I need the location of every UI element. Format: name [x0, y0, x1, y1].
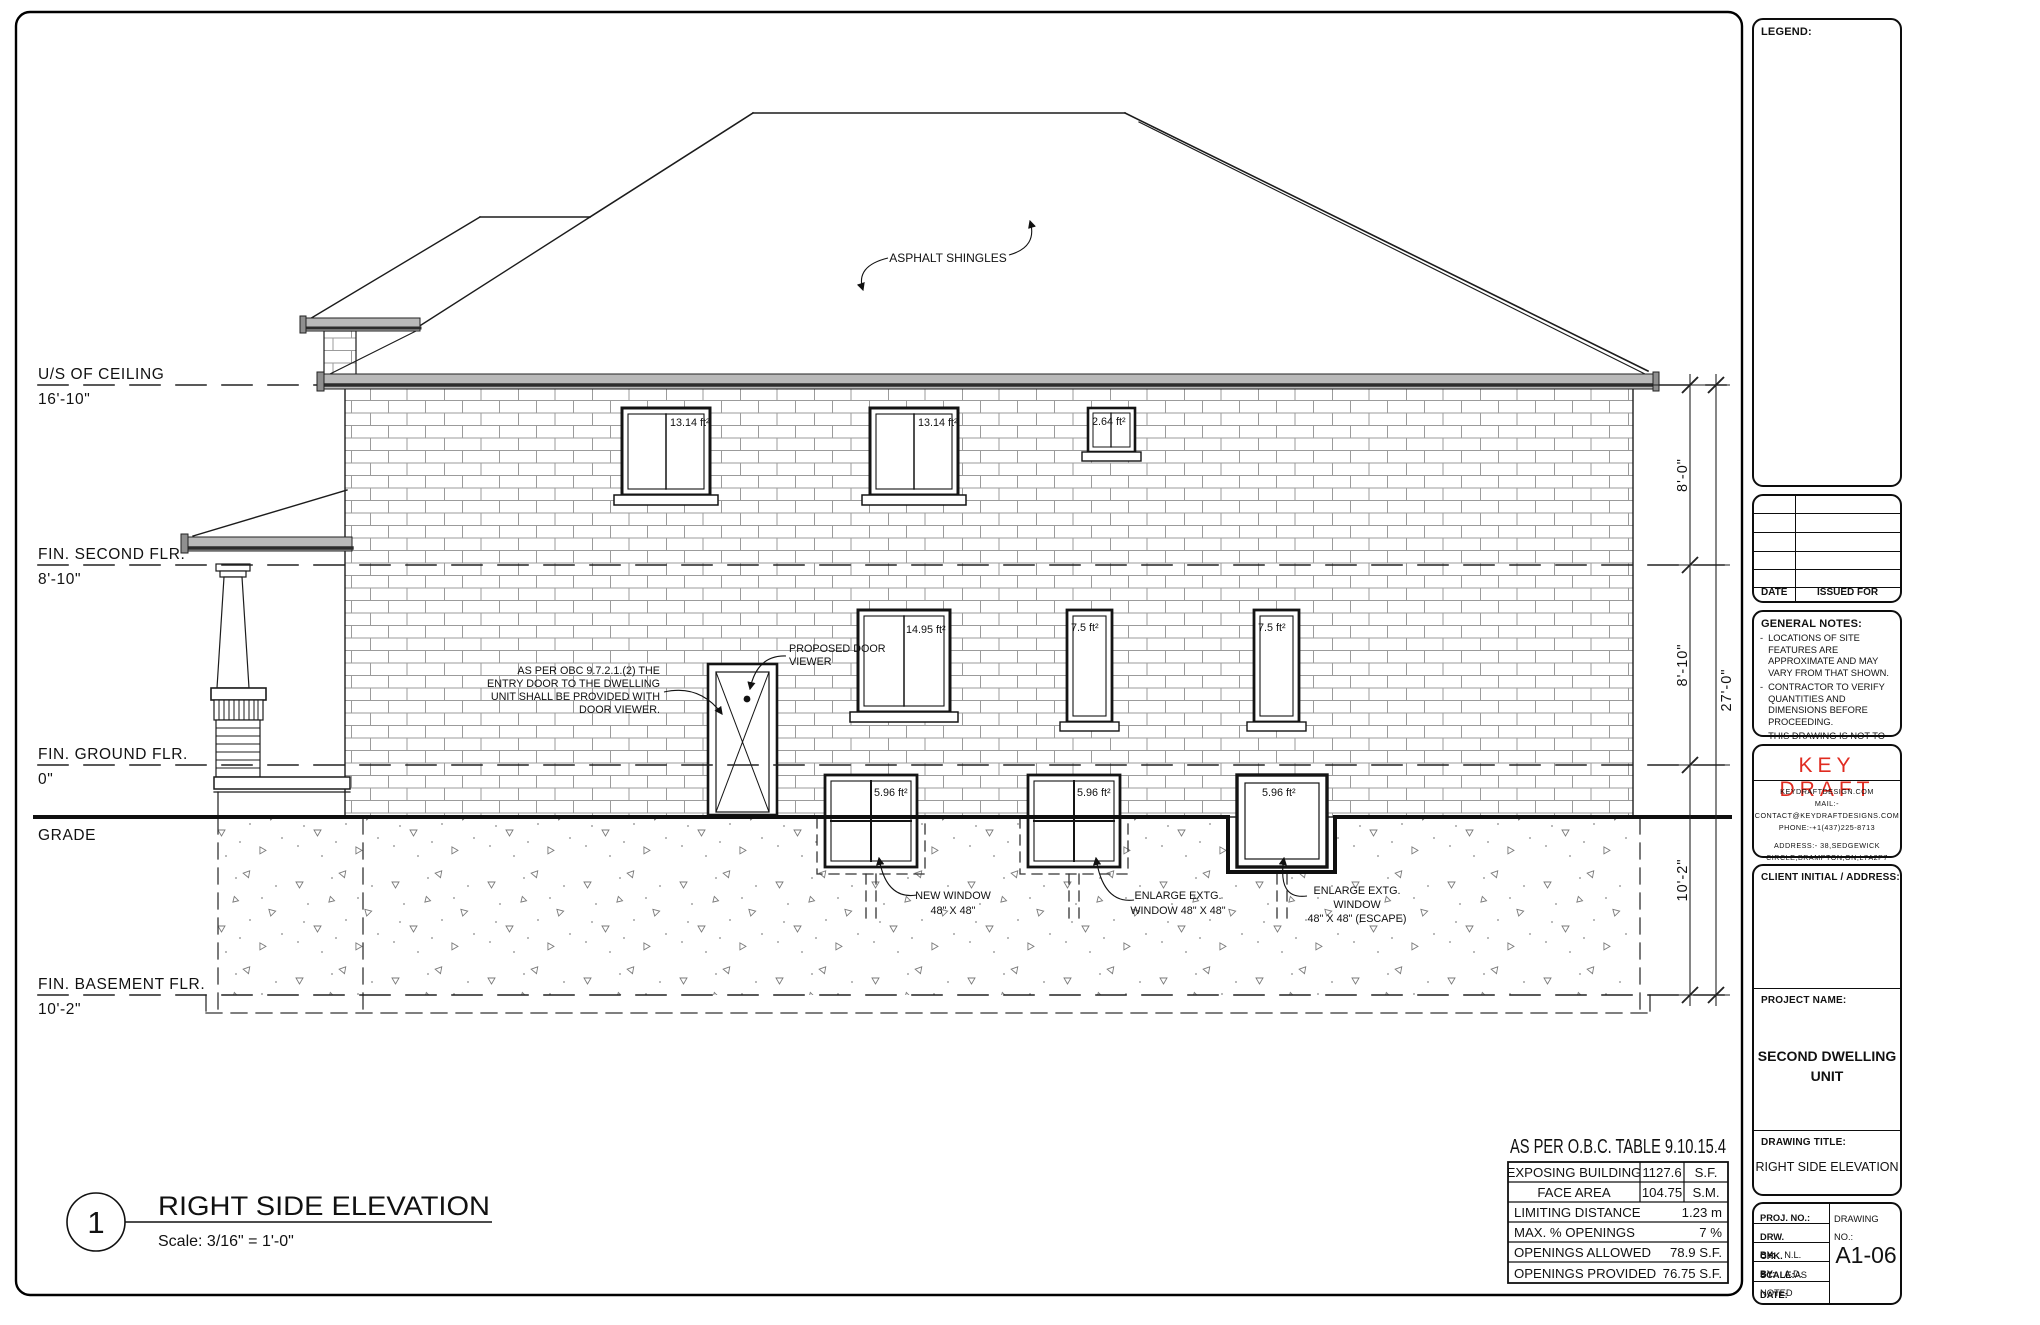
firm-logo: KEY DRAFT	[1754, 746, 1900, 778]
proj-no-label: PROJ. NO.:	[1760, 1213, 1810, 1223]
general-notes-box: GENERAL NOTES: LOCATIONS OF SITE FEATURE…	[1752, 610, 1902, 737]
area-second-b: 13.14 ft²	[918, 417, 958, 429]
area-ground-big: 14.95 ft²	[906, 624, 946, 636]
door-viewer-dot	[744, 696, 751, 703]
drawing-title-value: RIGHT SIDE ELEVATION	[1754, 1160, 1900, 1174]
main-fascia	[317, 372, 1659, 391]
obc-sf-unit: S.F.	[1695, 1165, 1718, 1180]
dimension-texts: 8'-0" 8'-10" 10'-2" 27'-0"	[1675, 458, 1735, 901]
area-basement-b: 5.96 ft²	[1077, 787, 1111, 799]
note-enlarge2-2: WINDOW	[1333, 899, 1381, 911]
note-viewer-2: VIEWER	[789, 656, 832, 668]
general-note-item: CONTRACTOR TO VERIFY QUANTITIES AND DIME…	[1758, 682, 1892, 728]
label-basement: FIN. BASEMENT FLR.	[38, 976, 205, 993]
level-labels: U/S OF CEILING 16'-10" FIN. SECOND FLR. …	[38, 366, 205, 1018]
general-note-item: LOCATIONS OF SITE FEATURES ARE APPROXIMA…	[1758, 633, 1892, 679]
firm-address-1: ADDRESS:- 38,SEDGEWICK	[1754, 840, 1900, 852]
value-ground: 0"	[38, 771, 53, 788]
obc-provided-value: 76.75 S.F.	[1663, 1266, 1722, 1281]
view-number: 1	[87, 1205, 104, 1240]
note-enlarge1-1: ENLARGE EXTG.	[1135, 890, 1222, 902]
value-ceiling: 16'-10"	[38, 391, 90, 408]
project-name-line1: SECOND DWELLING	[1754, 1046, 1900, 1066]
note-newwin-2: 48" X 48"	[931, 905, 976, 917]
obc-allowed-label: OPENINGS ALLOWED	[1514, 1245, 1651, 1260]
lower-roof-fascia	[300, 316, 420, 333]
porch-slab	[214, 777, 350, 815]
client-project-box: CLIENT INITIAL / ADDRESS: PROJECT NAME: …	[1752, 864, 1902, 1196]
note-door-4: DOOR VIEWER.	[579, 704, 660, 716]
entry-door	[708, 664, 777, 815]
firm-address-2: CIRCLE,BRAMPTON,ON,L7A2P7	[1754, 852, 1900, 864]
issued-for-header: ISSUED FOR	[1817, 587, 1878, 598]
area-basement-c: 5.96 ft²	[1262, 787, 1296, 799]
value-second: 8'-10"	[38, 571, 81, 588]
general-notes-title: GENERAL NOTES:	[1754, 612, 1900, 630]
client-label: CLIENT INITIAL / ADDRESS:	[1754, 866, 1900, 883]
issued-divider	[1795, 496, 1796, 601]
note-newwin-1: NEW WINDOW	[915, 890, 991, 902]
obc-max-label: MAX. % OPENINGS	[1514, 1225, 1635, 1240]
legend-title: LEGEND:	[1754, 20, 1900, 38]
project-name-line2: UNIT	[1754, 1066, 1900, 1086]
obc-sm-unit: S.M.	[1692, 1185, 1719, 1200]
note-door-1: AS PER OBC 9.7.2.1.(2) THE	[517, 665, 660, 677]
date-label: DATE:	[1760, 1290, 1788, 1300]
firm-box: KEY DRAFT KEYDRAFTDESIGN.COM MAIL:-CONTA…	[1752, 744, 1902, 858]
dim-middle: 8'-10"	[1675, 644, 1691, 687]
label-second: FIN. SECOND FLR.	[38, 546, 185, 563]
building-elevation	[35, 113, 1730, 1013]
note-viewer-1: PROPOSED DOOR	[789, 643, 886, 655]
obc-provided-label: OPENINGS PROVIDED	[1514, 1266, 1656, 1281]
label-ceiling: U/S OF CEILING	[38, 366, 164, 383]
note-enlarge2-1: ENLARGE EXTG.	[1314, 885, 1401, 897]
area-ground-a: 7.5 ft²	[1071, 622, 1099, 634]
dim-upper: 8'-0"	[1675, 458, 1691, 492]
obc-exposing-2: FACE AREA	[1537, 1185, 1610, 1200]
label-ground: FIN. GROUND FLR.	[38, 746, 188, 763]
obc-limiting-label: LIMITING DISTANCE	[1514, 1205, 1641, 1220]
obc-exposing-1: EXPOSING BUILDING	[1507, 1165, 1642, 1180]
view-title: 1 RIGHT SIDE ELEVATION Scale: 3/16" = 1'…	[67, 1191, 492, 1251]
note-door-2: ENTRY DOOR TO THE DWELLING	[487, 678, 660, 690]
drawing-no-value: A1-06	[1830, 1242, 1902, 1269]
obc-sf-value: 1127.6	[1642, 1165, 1681, 1180]
firm-site: KEYDRAFTDESIGN.COM	[1754, 786, 1900, 798]
note-enlarge2-3: 48" X 48" (ESCAPE)	[1308, 913, 1407, 925]
note-enlarge1-2: WINDOW 48" X 48"	[1130, 905, 1225, 917]
area-ground-b: 7.5 ft²	[1258, 622, 1286, 634]
drawing-no-label: DRAWING NO.:	[1834, 1209, 1900, 1245]
brick-wall	[345, 388, 1633, 817]
scale-label: SCALE:	[1760, 1270, 1795, 1280]
porch-column	[211, 564, 266, 777]
area-basement-a: 5.96 ft²	[874, 787, 908, 799]
issued-for-box: DATE ISSUED FOR	[1752, 494, 1902, 603]
titleblock-box: PROJ. NO.: DRW. BY: N.L. CHK. BY: A.D. S…	[1752, 1202, 1902, 1305]
label-grade: GRADE	[38, 827, 96, 844]
firm-mail: MAIL:-CONTACT@KEYDRAFTDESIGNS.COM	[1754, 798, 1900, 822]
issued-date-header: DATE	[1761, 587, 1787, 598]
obc-sm-value: 104.75	[1642, 1185, 1682, 1200]
legend-box: LEGEND:	[1752, 18, 1902, 487]
area-second-small: 2.64 ft²	[1092, 416, 1126, 428]
roof-plane	[303, 113, 1648, 377]
dim-lower: 10'-2"	[1675, 859, 1691, 902]
project-label: PROJECT NAME:	[1754, 989, 1900, 1006]
obc-limiting-value: 1.23 m	[1682, 1205, 1722, 1220]
porch	[181, 490, 352, 815]
elevation-drawing-sheet: U/S OF CEILING 16'-10" FIN. SECOND FLR. …	[0, 0, 2040, 1320]
view-scale-text: Scale: 3/16" = 1'-0"	[158, 1233, 294, 1250]
note-shingles: ASPHALT SHINGLES	[889, 251, 1007, 265]
dim-overall: 27'-0"	[1719, 669, 1735, 712]
porch-fascia	[181, 534, 352, 553]
obc-table: AS PER O.B.C. TABLE 9.10.15.4 EXPOSING B…	[1507, 1136, 1728, 1283]
note-door-3: UNIT SHALL BE PROVIDED WITH	[491, 691, 660, 703]
area-second-a: 13.14 ft²	[670, 417, 710, 429]
obc-title: AS PER O.B.C. TABLE 9.10.15.4	[1510, 1136, 1726, 1158]
value-basement: 10'-2"	[38, 1001, 81, 1018]
porch-roof-slope	[193, 490, 347, 536]
drawing-title-label: DRAWING TITLE:	[1754, 1131, 1900, 1148]
view-title-text: RIGHT SIDE ELEVATION	[158, 1191, 490, 1221]
firm-phone: PHONE:-+1(437)225-8713	[1754, 822, 1900, 834]
obc-max-value: 7 %	[1699, 1225, 1722, 1240]
obc-allowed-value: 78.9 S.F.	[1670, 1245, 1722, 1260]
